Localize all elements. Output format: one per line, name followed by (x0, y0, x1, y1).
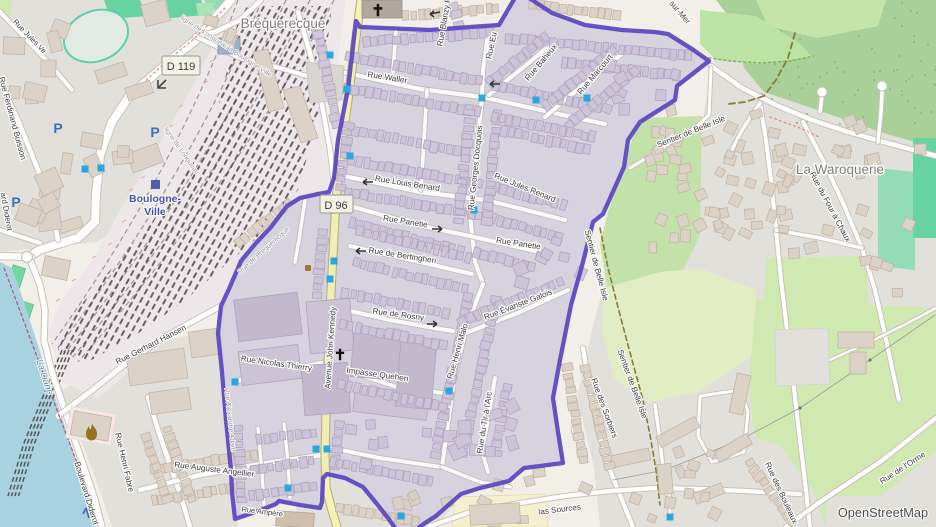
svg-text:P: P (11, 194, 20, 210)
svg-text:P: P (150, 124, 159, 140)
svg-text:D 96: D 96 (324, 200, 347, 212)
svg-text:Ville: Ville (144, 206, 166, 218)
svg-text:OpenStreetMap: OpenStreetMap (838, 505, 928, 520)
svg-text:✝: ✝ (334, 347, 347, 364)
svg-text:D 119: D 119 (167, 61, 196, 73)
svg-text:✝: ✝ (371, 3, 384, 20)
svg-text:Boulogne-: Boulogne- (129, 193, 181, 205)
svg-text:P: P (53, 120, 62, 136)
svg-text:Bréquerecque: Bréquerecque (241, 16, 326, 31)
